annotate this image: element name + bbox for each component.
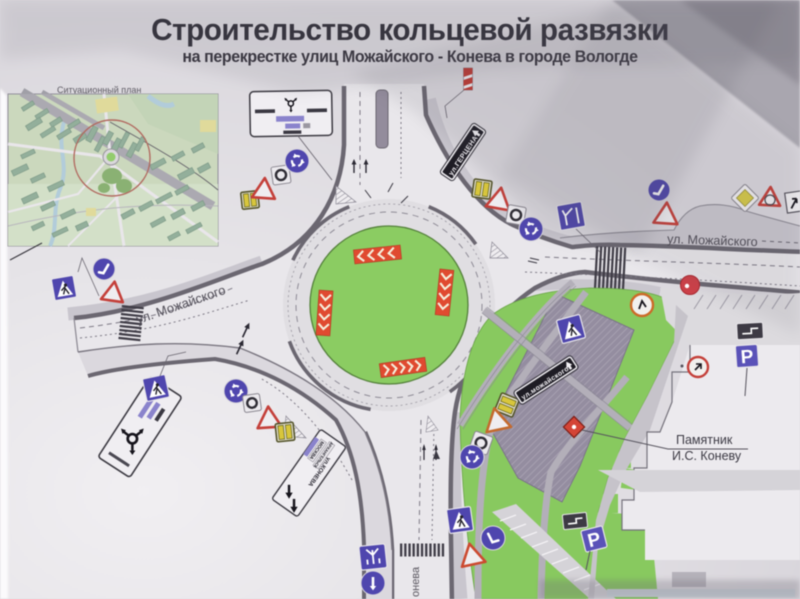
- svg-text:Памятник: Памятник: [676, 433, 733, 447]
- svg-text:онева: онева: [410, 566, 422, 597]
- svg-text:P: P: [740, 347, 754, 369]
- svg-text:И.С. Коневу: И.С. Коневу: [672, 449, 742, 463]
